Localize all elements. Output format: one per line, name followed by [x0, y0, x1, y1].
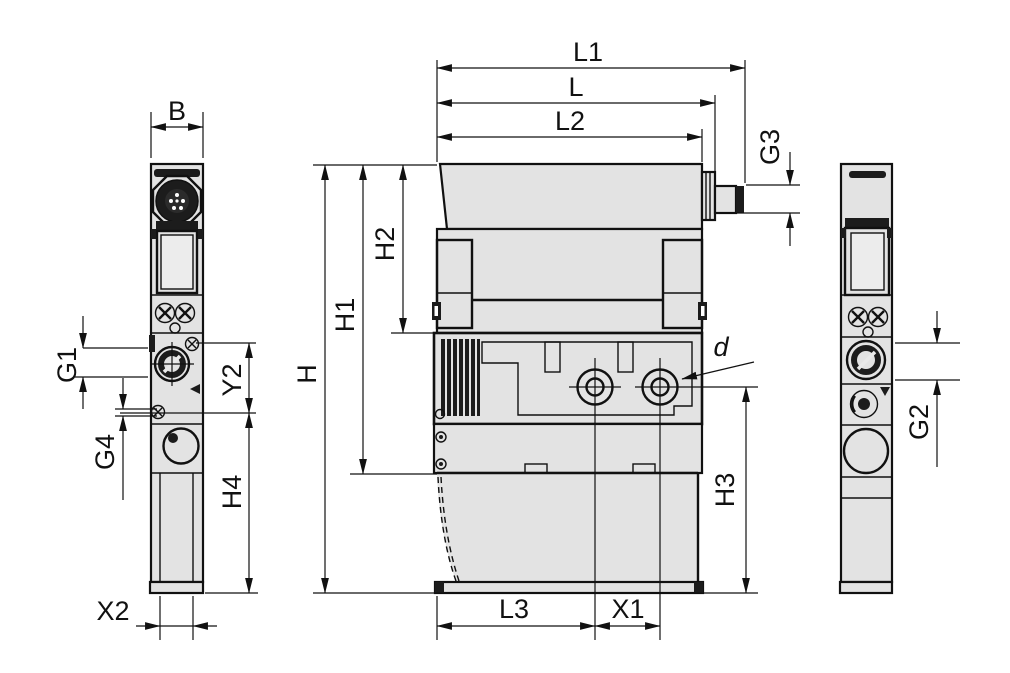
dim-label-G3: G3 — [755, 129, 785, 165]
dim-label-L: L — [568, 72, 583, 102]
dim-label-Y2: Y2 — [217, 363, 247, 396]
dim-label-X1: X1 — [611, 594, 644, 624]
dim-L2: L2 — [437, 106, 702, 162]
mounting-section — [432, 229, 707, 333]
dim-X2: X2 — [96, 596, 217, 640]
dim-label-G4: G4 — [90, 434, 120, 470]
dim-G1: G1 — [52, 316, 148, 409]
right-side-view: G2 — [840, 164, 960, 593]
dim-label-L1: L1 — [573, 37, 603, 67]
front-top-cover — [440, 164, 702, 229]
drawing-canvas: B G1 G4 Y2 H4 — [0, 0, 1010, 673]
dim-G4: G4 — [90, 378, 157, 500]
right-port — [847, 341, 885, 379]
front-bottom-rail — [435, 582, 703, 593]
top-slot — [849, 171, 886, 178]
dim-H4: H4 — [205, 413, 258, 593]
dim-label-H2: H2 — [370, 227, 400, 262]
dim-G2: G2 — [895, 311, 960, 467]
dim-label-H3: H3 — [710, 473, 740, 508]
dim-label-L3: L3 — [499, 594, 529, 624]
right-view-bottom-rail — [840, 582, 892, 593]
dim-label-B: B — [168, 96, 186, 126]
dim-label-H: H — [292, 364, 322, 384]
dim-label-G2: G2 — [904, 404, 934, 440]
left-side-view: B G1 G4 Y2 H4 — [52, 96, 258, 640]
dim-label-d: d — [713, 332, 729, 362]
ejector-face-section — [434, 333, 702, 424]
dim-label-G1: G1 — [52, 347, 82, 383]
bottom-housing — [435, 473, 703, 593]
dim-B: B — [151, 96, 203, 158]
left-view-bottom-rail — [150, 582, 203, 593]
screw-section — [434, 424, 702, 473]
dim-label-H4: H4 — [217, 475, 247, 510]
dim-L1: L1 — [437, 37, 745, 183]
dim-label-X2: X2 — [96, 596, 129, 626]
dim-label-L2: L2 — [555, 106, 585, 136]
front-view: L1 L L2 G3 — [292, 37, 800, 640]
technical-drawing: B G1 G4 Y2 H4 — [0, 0, 1010, 673]
dim-label-H1: H1 — [330, 298, 360, 333]
